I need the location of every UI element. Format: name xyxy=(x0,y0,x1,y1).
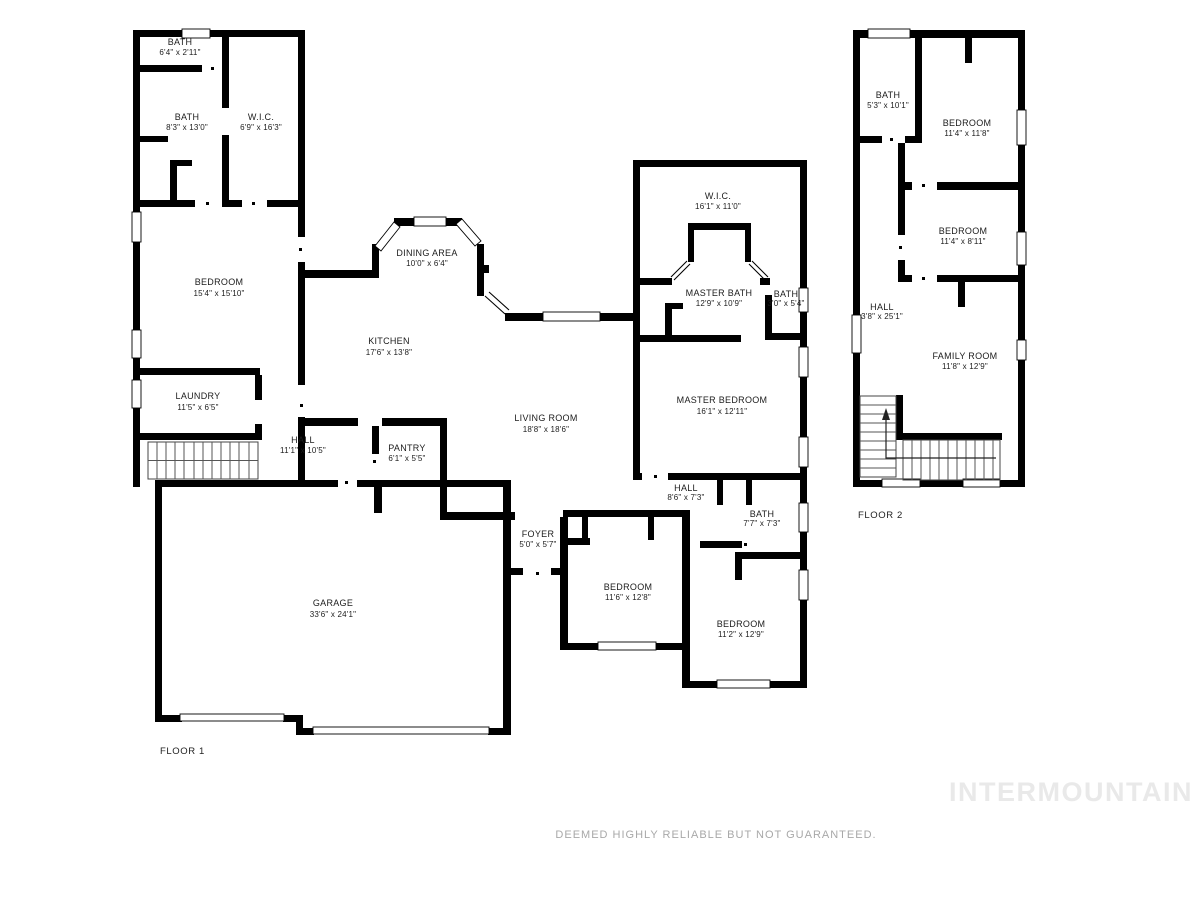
stair-treads xyxy=(148,442,258,479)
room-name: PANTRY xyxy=(388,443,425,453)
room-name: BATH xyxy=(774,289,799,299)
room-dims: 10'0" x 6'4" xyxy=(406,259,448,268)
room-dims: 6'4" x 2'11" xyxy=(159,48,200,57)
room-dims: 8'6" x 7'3" xyxy=(667,493,704,502)
room-dims: 15'4" x 15'10" xyxy=(193,289,244,298)
room-dims: 11'4" x 11'8" xyxy=(944,129,989,138)
staircase-floor-1 xyxy=(148,442,258,479)
room-name: HALL xyxy=(674,483,698,493)
room-name: GARAGE xyxy=(313,598,353,608)
room-dims: 3'0" x 5'4" xyxy=(767,299,804,308)
room-name: LIVING ROOM xyxy=(514,413,577,423)
floor-plan-svg: BATH 6'4" x 2'11" BATH 8'3" x 13'0" W.I.… xyxy=(0,0,1200,899)
room-dims: 7'7" x 7'3" xyxy=(743,519,780,528)
room-name: BEDROOM xyxy=(939,226,988,236)
window xyxy=(132,380,141,408)
window xyxy=(717,680,770,688)
floor-plan-page: BATH 6'4" x 2'11" BATH 8'3" x 13'0" W.I.… xyxy=(0,0,1200,899)
room-dims: 3'8" x 25'1" xyxy=(861,312,903,321)
room-dims: 11'5" x 6'5" xyxy=(177,403,218,412)
window xyxy=(1017,340,1026,360)
diagonal-doorway-line xyxy=(489,292,509,310)
window xyxy=(132,330,141,358)
room-name: LAUNDRY xyxy=(176,391,221,401)
floor-1-title: FLOOR 1 xyxy=(160,746,205,757)
windows xyxy=(132,29,1026,734)
room-dims: 16'1" x 12'11" xyxy=(697,407,748,416)
window xyxy=(868,29,910,38)
room-name: FOYER xyxy=(522,529,555,539)
room-dims: 33'6" x 24'1" xyxy=(310,610,356,619)
stair-treads xyxy=(912,440,993,480)
window xyxy=(543,312,600,321)
diagonal-doorway-line xyxy=(485,296,505,314)
room-name: HALL xyxy=(291,435,315,445)
room-name: BEDROOM xyxy=(943,118,992,128)
window xyxy=(799,347,808,377)
room-dims: 11'6" x 12'8" xyxy=(605,593,651,602)
room-name: BATH xyxy=(876,90,901,100)
room-dims: 11'8" x 12'9" xyxy=(942,362,988,371)
floor-2-title: FLOOR 2 xyxy=(858,510,903,521)
room-dims: 6'1" x 5'5" xyxy=(388,454,425,463)
room-dims: 5'0" x 5'7" xyxy=(519,540,556,549)
room-name: BEDROOM xyxy=(717,619,766,629)
room-dims: 11'4" x 8'11" xyxy=(940,237,985,246)
room-name: HALL xyxy=(870,302,894,312)
room-name: MASTER BATH xyxy=(686,288,753,298)
room-name: W.I.C. xyxy=(705,191,731,201)
wall-structure-floor-1 xyxy=(133,30,807,735)
window xyxy=(1017,232,1026,265)
window xyxy=(414,217,446,226)
room-dims: 11'2" x 12'9" xyxy=(718,630,764,639)
floor-1-walls xyxy=(133,30,807,735)
room-name: W.I.C. xyxy=(248,112,274,122)
room-dims: 6'9" x 16'3" xyxy=(240,123,282,132)
room-name: BATH xyxy=(750,509,775,519)
window xyxy=(799,570,808,600)
room-name: FAMILY ROOM xyxy=(933,351,998,361)
garage-door xyxy=(180,714,284,721)
room-dims: 18'8" x 18'6" xyxy=(523,425,569,434)
room-name: DINING AREA xyxy=(396,248,457,258)
room-name: KITCHEN xyxy=(368,336,410,346)
room-dims: 16'1" x 11'0" xyxy=(695,202,741,211)
room-name: BEDROOM xyxy=(195,277,244,287)
disclaimer-text: DEEMED HIGHLY RELIABLE BUT NOT GUARANTEE… xyxy=(555,829,876,841)
bay-window xyxy=(456,219,481,246)
bay-window xyxy=(375,222,400,251)
window xyxy=(1017,110,1026,145)
window xyxy=(799,437,808,467)
room-name: BATH xyxy=(175,112,200,122)
window xyxy=(799,503,808,532)
room-name: BEDROOM xyxy=(604,582,653,592)
room-dims: 11'1" x 10'5" xyxy=(280,446,326,455)
room-name: BATH xyxy=(168,37,193,47)
window xyxy=(598,642,656,650)
room-dims: 17'6" x 13'8" xyxy=(366,348,412,357)
stair-outline xyxy=(860,396,896,477)
room-dims: 8'3" x 13'0" xyxy=(166,123,208,132)
watermark-text: INTERMOUNTAIN xyxy=(949,777,1193,807)
window xyxy=(132,212,141,242)
floor-2-labels: BATH 5'3" x 10'1" BEDROOM 11'4" x 11'8" … xyxy=(861,90,997,371)
room-name: MASTER BEDROOM xyxy=(677,395,768,405)
garage-door xyxy=(313,727,489,734)
room-dims: 5'3" x 10'1" xyxy=(867,101,909,110)
room-dims: 12'9" x 10'9" xyxy=(696,299,742,308)
stair-outline xyxy=(903,440,1000,480)
window xyxy=(852,315,861,353)
